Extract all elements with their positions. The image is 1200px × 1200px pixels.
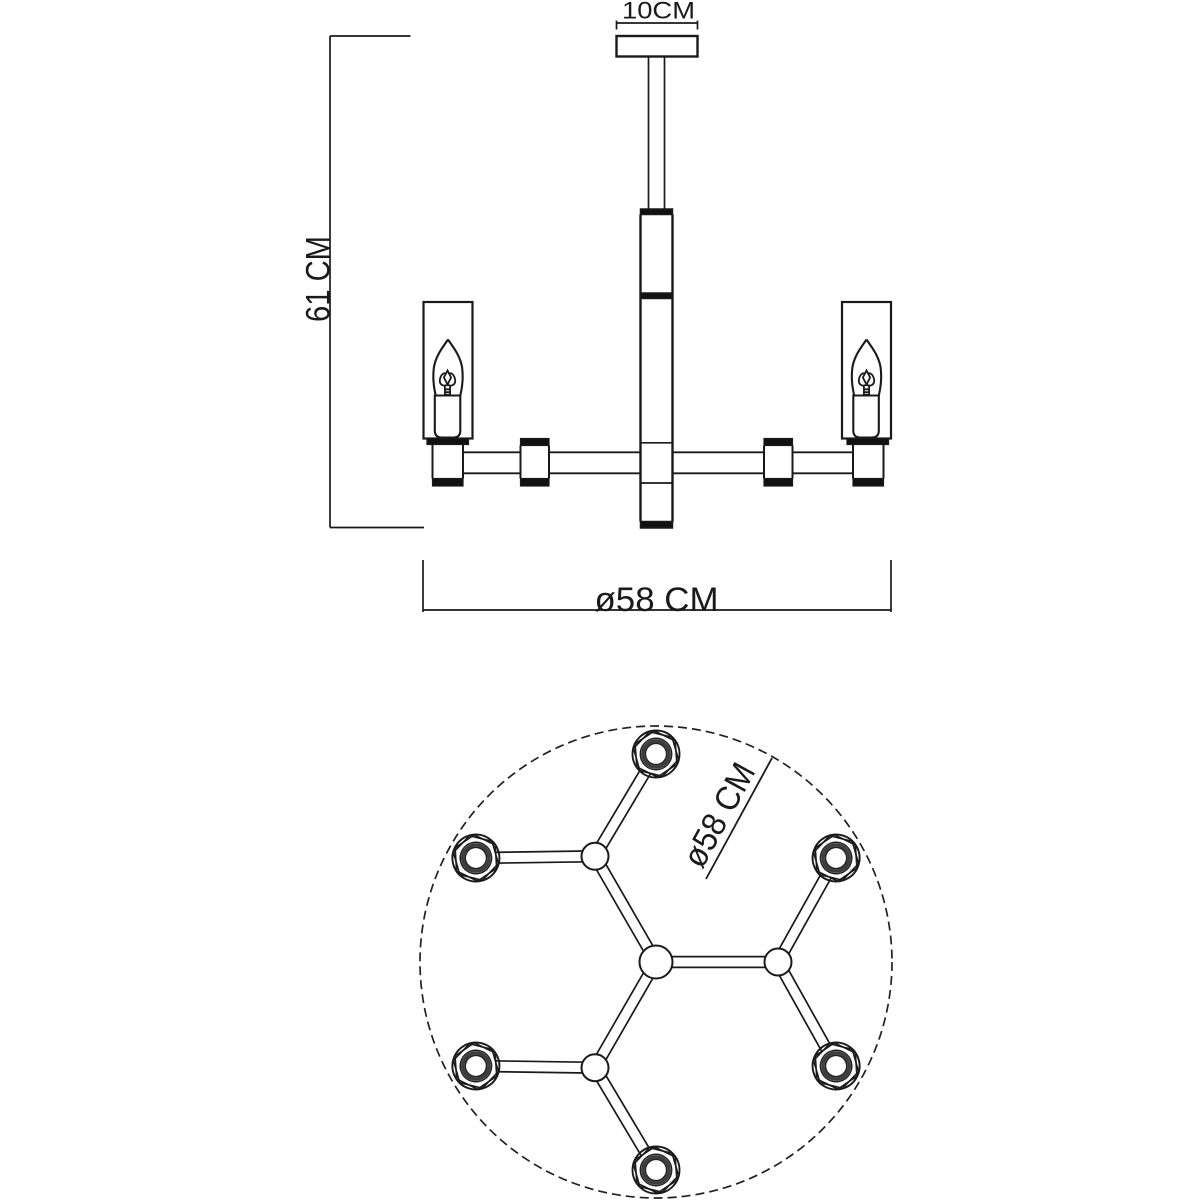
svg-text:ø58 CM: ø58 CM (595, 581, 719, 619)
svg-text:61 CM: 61 CM (300, 236, 338, 322)
svg-text:10CM: 10CM (622, 0, 695, 25)
